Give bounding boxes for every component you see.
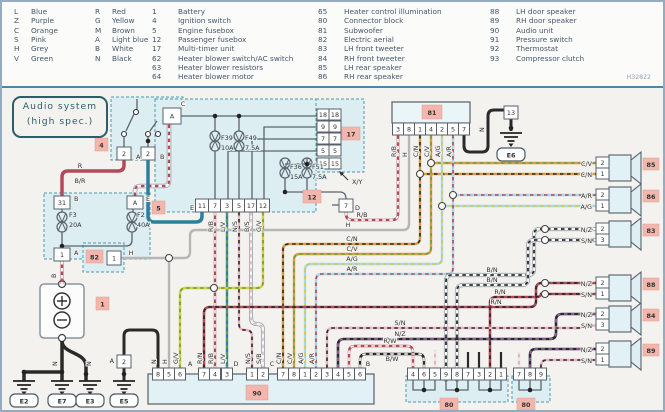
pin-number: 2	[122, 150, 126, 158]
legend-name: Thermostat	[516, 44, 558, 53]
junction-dot	[237, 114, 242, 119]
connector-letter: B	[74, 195, 78, 203]
legend-code: 88	[490, 7, 516, 16]
legend-row: 93Compressor clutch	[490, 53, 584, 62]
speaker-body	[609, 155, 631, 181]
pin-number: 15	[331, 160, 339, 168]
pin-number: 8	[455, 370, 459, 378]
wire-label: L/V	[219, 221, 227, 232]
wire-label: R/B	[390, 146, 398, 157]
legend-code: 91	[490, 35, 516, 44]
legend-row: 5Engine fusebox	[152, 26, 293, 35]
wiring-diagram-page: LBlueZPurpleCOrangeSPinkHGreyVGreen RRed…	[0, 0, 665, 412]
speaker-body	[609, 275, 631, 301]
legend-code: 64	[152, 72, 178, 81]
junction-dot	[422, 388, 427, 393]
fuse-label: F39	[221, 134, 233, 142]
junction-dot	[22, 370, 27, 375]
component-badge-number: 80	[445, 401, 454, 409]
wire-label: S/N	[581, 322, 592, 330]
legend-code: 89	[490, 16, 516, 25]
fuse-label: 15A	[290, 173, 303, 181]
wire-label: B/W	[386, 355, 400, 363]
pin-number: 9	[333, 123, 337, 131]
connector-letter: A	[188, 360, 193, 368]
legend-components-col3: 88LH door speaker89RH door speaker90Audi…	[490, 7, 584, 63]
legend-row: 64Heater blower motor	[152, 72, 293, 81]
pin-number: 18	[319, 111, 327, 119]
legend-name: Pressure switch	[516, 35, 573, 44]
wire-label: H	[346, 221, 351, 229]
legend-name: Electric aerial	[344, 35, 394, 44]
legend-code: B	[95, 44, 112, 53]
pin-number: 13	[507, 109, 515, 117]
wire-label: R/W	[384, 337, 398, 345]
speaker-body	[609, 221, 631, 247]
pin-number: 7	[333, 135, 337, 143]
pin-number: 5	[237, 202, 241, 210]
connector-letter: A	[74, 249, 79, 257]
junction-dot	[146, 139, 151, 144]
wire-label: B/N	[486, 266, 498, 274]
legend-name: Pink	[31, 35, 46, 44]
pin-number: 2	[600, 159, 604, 167]
component-badge-number: 83	[647, 227, 656, 235]
wire-label: A/G	[581, 203, 593, 211]
connector-icon	[542, 280, 549, 287]
pin-number: 6	[358, 370, 362, 378]
connector-icon	[166, 255, 173, 262]
legend-name: Multi-timer unit	[178, 44, 234, 53]
pin-number: 31	[58, 199, 66, 207]
legend-name: Purple	[31, 16, 54, 25]
legend-code: 12	[152, 35, 178, 44]
legend-code: 62	[152, 54, 178, 63]
legend-row: 81Subwoofer	[318, 26, 442, 35]
pin-number: 4	[411, 370, 415, 378]
legend-name: Ignition switch	[178, 16, 231, 25]
pin-number: 18	[331, 111, 339, 119]
fuse-label: F2	[137, 211, 145, 219]
legend-name: Black	[112, 54, 132, 63]
legend-name: Compressor clutch	[516, 54, 584, 63]
fuse-label: F49	[245, 134, 257, 142]
speaker-body	[609, 341, 631, 367]
speaker-cone-icon	[631, 338, 641, 370]
wire-label: A/R	[445, 145, 453, 157]
component-badge-number: 82	[90, 253, 99, 261]
legend-name: Heater control illumination	[344, 7, 442, 16]
legend-row: 86RH rear speaker	[318, 72, 442, 81]
legend-name: LH rear speaker	[344, 63, 402, 72]
fuse-label: F36	[290, 163, 302, 171]
pin-number: 9	[321, 123, 325, 131]
legend-components-col1: 1Battery4Ignition switch5Engine fusebox1…	[152, 7, 293, 81]
wire-label: S/N	[581, 357, 592, 365]
pin-number: 3	[600, 236, 604, 244]
pin-number: 1	[112, 254, 116, 262]
pin-number: 2	[600, 345, 604, 353]
legend-code: 84	[318, 54, 344, 63]
component-badge-number: 5	[156, 204, 160, 212]
legend-name: Brown	[112, 26, 135, 35]
wire-label: H	[401, 152, 409, 157]
legend-row: 80Connector block	[318, 16, 442, 25]
fuse-label: 10A	[221, 144, 234, 152]
component-badge-number: 89	[647, 347, 656, 355]
legend-row: 65Heater control illumination	[318, 7, 442, 16]
component-badge-number: 90	[253, 389, 262, 397]
pin-number: 5	[321, 147, 325, 155]
speaker-cone-icon	[631, 152, 641, 184]
pin-number: 7	[466, 370, 470, 378]
legend-row: 91Pressure switch	[490, 35, 584, 44]
wire-label: R/N	[196, 352, 204, 364]
legend-name: RH front tweeter	[344, 54, 405, 63]
junction-dot	[60, 370, 65, 375]
legend-code: C	[14, 26, 31, 35]
pin-number: 1	[499, 370, 503, 378]
wire-label: C/V	[286, 352, 294, 364]
wire-label: S/B	[255, 353, 263, 364]
pin-number: 2	[314, 370, 318, 378]
legend-row: 62Heater blower switch/AC switch	[152, 53, 293, 62]
legend-row: MBrown	[95, 26, 148, 35]
legend-row: HGrey	[14, 44, 58, 53]
pin-number: 5	[167, 370, 171, 378]
pin-number: 7	[517, 370, 521, 378]
legend-name: Audio unit	[516, 26, 553, 35]
wire-RW-stripe	[349, 346, 413, 368]
wire-label: H	[161, 359, 169, 364]
pin-number: 9	[444, 370, 448, 378]
wire-label: N	[150, 359, 158, 364]
battery-body	[40, 284, 84, 338]
connector-letter: A	[110, 357, 115, 365]
legend-code: 82	[318, 35, 344, 44]
pin-number: 1	[250, 370, 254, 378]
pin-number: 3	[225, 370, 229, 378]
legend-row: BWhite	[95, 44, 148, 53]
pin-number: 6	[178, 370, 182, 378]
component-badge-number: 80	[522, 401, 531, 409]
wire-label: N/Z	[581, 311, 593, 319]
legend-row: RRed	[95, 7, 148, 16]
wire-label: A/G	[346, 255, 358, 263]
pin-number: 1	[600, 356, 604, 364]
fuse-label: F3	[69, 211, 77, 219]
component-badge-number: 12	[308, 193, 317, 201]
switch-contact-icon	[156, 132, 161, 137]
wire-RW	[349, 346, 413, 368]
component-badge-number: 17	[347, 130, 356, 138]
legend-name: Red	[112, 7, 126, 16]
pin-number: 1	[600, 170, 604, 178]
pin-number: 2	[600, 279, 604, 287]
connector-letter: B	[366, 360, 370, 368]
pin-number: 3	[396, 125, 400, 133]
junction-dot	[528, 388, 533, 393]
legend-code: G	[95, 16, 112, 25]
legend-code: N	[95, 54, 112, 63]
legend-row: COrange	[14, 26, 58, 35]
speaker-cone-icon	[631, 218, 641, 250]
legend-code: 81	[318, 26, 344, 35]
legend-row: 89RH door speaker	[490, 16, 584, 25]
ground-label: E5	[120, 398, 129, 406]
legend-code: 86	[318, 72, 344, 81]
pin-number: 3	[225, 202, 229, 210]
pin-number: 7	[202, 370, 206, 378]
speaker-cone-icon	[631, 272, 641, 304]
legend-row: GYellow	[95, 16, 148, 25]
switch-pivot-icon	[134, 110, 139, 115]
junction-dot	[84, 372, 89, 377]
wire-label: C/V	[347, 245, 359, 253]
pin-number: 2	[261, 370, 265, 378]
fuse-label: 20A	[69, 221, 82, 229]
pin-number: 2	[440, 125, 444, 133]
wire-label: N/Z	[581, 346, 593, 354]
legend-name: RH door speaker	[516, 16, 577, 25]
legend-code: V	[14, 54, 31, 63]
switch-contact-icon	[122, 132, 127, 137]
legend-row: 85LH rear speaker	[318, 63, 442, 72]
component-badge-number: 4	[99, 141, 104, 149]
component-badge-number: 81	[428, 109, 437, 117]
ground-icon	[51, 381, 73, 389]
connector-icon	[450, 192, 457, 199]
ground-label: E7	[58, 398, 67, 406]
wire-label: G/V	[172, 352, 180, 364]
pin-number: 17	[247, 202, 255, 210]
legend-name: Light blue	[112, 35, 148, 44]
connector-letter: B	[160, 153, 164, 161]
junction-dot	[455, 388, 460, 393]
pin-number: 8	[407, 125, 411, 133]
diagram-reference-code: H32822	[627, 74, 651, 81]
legend-code: Z	[14, 16, 31, 25]
legend-code: L	[14, 7, 31, 16]
wire-label: S/N	[581, 237, 592, 245]
pin-number: 12	[259, 202, 267, 210]
component-badge-number: 88	[647, 281, 656, 289]
legend-code: 4	[152, 16, 178, 25]
connector-letter: C	[270, 360, 275, 368]
wire-label: L/V	[219, 353, 227, 364]
legend-row: 92Thermostat	[490, 44, 584, 53]
legend-name: Heater blower motor	[178, 72, 254, 81]
connector-icon	[439, 203, 446, 210]
pin-number: 4	[429, 125, 433, 133]
fuse-label: 7.5A	[312, 173, 327, 181]
diagram-title-line1: Audio system	[23, 101, 97, 112]
legend-name: Heater blower switch/AC switch	[178, 54, 293, 63]
wire-label: A/R	[308, 352, 316, 364]
legend-color-codes-col1: LBlueZPurpleCOrangeSPinkHGreyVGreen	[14, 7, 58, 63]
wire-label: N	[85, 361, 93, 366]
legend-name: Engine fusebox	[178, 26, 234, 35]
wire-label: N	[478, 127, 486, 132]
wire-label: G/V	[255, 220, 263, 232]
connector-letter: E	[190, 204, 194, 212]
legend-name: Passenger fusebox	[178, 35, 246, 44]
legend-name: LH door speaker	[516, 7, 576, 16]
wire-N-ground	[62, 341, 86, 381]
legend-row: 12Passenger fusebox	[152, 35, 293, 44]
legend-code: H	[14, 44, 31, 53]
junction-dot	[509, 126, 514, 131]
pin-number: 7	[462, 125, 466, 133]
wire-label: C/N	[412, 145, 420, 157]
wire-label: B/R	[75, 177, 87, 185]
pin-number: 4	[336, 370, 340, 378]
wire-label: C/N	[275, 352, 283, 364]
connector-letter: D	[355, 204, 360, 212]
wire-ignition-feed-R	[62, 160, 124, 196]
pin-number: 2	[122, 358, 126, 366]
wire-label: N/S	[231, 221, 239, 232]
pin-number: 8	[292, 370, 296, 378]
wire-label: R/B	[207, 353, 215, 364]
legend-row: LBlue	[14, 7, 58, 16]
ground-label: E2	[20, 398, 29, 406]
wire-label: A/R	[581, 192, 593, 200]
wire-label: R/B	[207, 221, 215, 232]
legend-name: White	[112, 44, 133, 53]
wire-label: R/N	[494, 288, 506, 296]
legend-row: SPink	[14, 35, 58, 44]
legend-separator	[0, 86, 665, 88]
speaker-body	[609, 306, 631, 332]
junction-dot	[488, 388, 493, 393]
wire-label: N	[51, 361, 59, 366]
legend-code: M	[95, 26, 112, 35]
legend-row: 83LH front tweeter	[318, 44, 442, 53]
diagram-title: Audio system (high spec.)	[12, 96, 108, 138]
connector-icon	[542, 237, 549, 244]
pin-number: 7	[321, 135, 325, 143]
fuse-label: 7.5A	[245, 144, 260, 152]
legend-code: 92	[490, 44, 516, 53]
legend-color-codes-col2: RRedGYellowMBrownALight blueBWhiteNBlack	[95, 7, 148, 63]
wire-N-ground	[24, 341, 62, 381]
legend-code: 63	[152, 63, 178, 72]
pin-number: 2	[600, 310, 604, 318]
component-badge-number: 85	[647, 161, 656, 169]
wire-label: S/N	[581, 291, 592, 299]
connector-letter: E	[146, 195, 150, 203]
legend-row: 4Ignition switch	[152, 16, 293, 25]
ground-arrow-icon	[509, 144, 514, 148]
pin-number: 7	[344, 202, 348, 210]
pin-number: 1	[303, 370, 307, 378]
legend-name: Blue	[31, 7, 47, 16]
component-badge-number: 1	[100, 300, 104, 308]
switch-contact-icon	[146, 132, 151, 137]
legend-name: Green	[31, 54, 53, 63]
battery-bottom-terminal	[59, 335, 66, 342]
pin-number: 11	[198, 202, 206, 210]
wire-label: C/V	[581, 160, 593, 168]
legend-code: 65	[318, 7, 344, 16]
legend-name: Connector block	[344, 16, 403, 25]
component-badge-number: 84	[647, 312, 656, 320]
wire-label: N/S	[244, 353, 252, 364]
wire-label: S/N	[395, 319, 406, 327]
pin-number: 1	[600, 290, 604, 298]
legend-code: A	[95, 35, 112, 44]
wire-label: B/N	[486, 276, 498, 284]
connector-icon	[542, 291, 549, 298]
wire-label: C/N	[346, 235, 358, 243]
pin-number: 2	[600, 225, 604, 233]
wire-label: R	[78, 162, 83, 170]
legend-code: 17	[152, 44, 178, 53]
pin-number: 7	[281, 370, 285, 378]
speaker-cone-icon	[631, 303, 641, 335]
legend-row: 88LH door speaker	[490, 7, 584, 16]
legend-code: 90	[490, 26, 516, 35]
legend-code: R	[95, 7, 112, 16]
pin-number: 2	[488, 370, 492, 378]
junction-dot	[122, 372, 127, 377]
legend-code: S	[14, 35, 31, 44]
legend-name: Orange	[31, 26, 58, 35]
connector-icon	[417, 171, 424, 178]
pin-number: A	[133, 199, 138, 207]
wire-label: X/Y	[352, 178, 363, 186]
pin-number: 6	[422, 370, 426, 378]
pin-number: 2	[600, 191, 604, 199]
legend-row: 84RH front tweeter	[318, 53, 442, 62]
pin-number: 5	[451, 125, 455, 133]
pin-number: 5	[333, 147, 337, 155]
connector-icon	[542, 226, 549, 233]
pin-number: 1	[60, 251, 64, 259]
wire-label: B	[50, 274, 58, 278]
wire-label: A/G	[297, 352, 305, 364]
component-badge-number: 86	[647, 193, 656, 201]
legend-name: LH front tweeter	[344, 44, 404, 53]
ground-icon	[13, 381, 35, 389]
junction-dot	[305, 162, 310, 167]
wire-label: C/N	[581, 171, 593, 179]
wire-label: H	[129, 249, 134, 257]
legend-code: 83	[318, 44, 344, 53]
wire-label: N/Z	[581, 226, 593, 234]
fuse-label: 40A	[137, 221, 150, 229]
fuse-label: F51	[312, 163, 324, 171]
speaker-body	[609, 187, 631, 213]
pin-number: 1	[418, 125, 422, 133]
pin-number: A	[170, 112, 175, 120]
wire-label: R/B	[357, 211, 368, 219]
legend-row: 82Electric aerial	[318, 35, 442, 44]
legend-row: VGreen	[14, 53, 58, 62]
pin-number: 5	[347, 370, 351, 378]
legend-row: ZPurple	[14, 16, 58, 25]
junction-dot	[213, 114, 218, 119]
legend-row: NBlack	[95, 53, 148, 62]
connector-letter: C	[181, 100, 186, 108]
ground-icon	[113, 381, 135, 389]
pin-number: 2	[146, 150, 150, 158]
pin-number: 5	[433, 370, 437, 378]
legend-code: 1	[152, 7, 178, 16]
legend-name: Heater blower resistors	[178, 63, 263, 72]
pin-number: 8	[156, 370, 160, 378]
